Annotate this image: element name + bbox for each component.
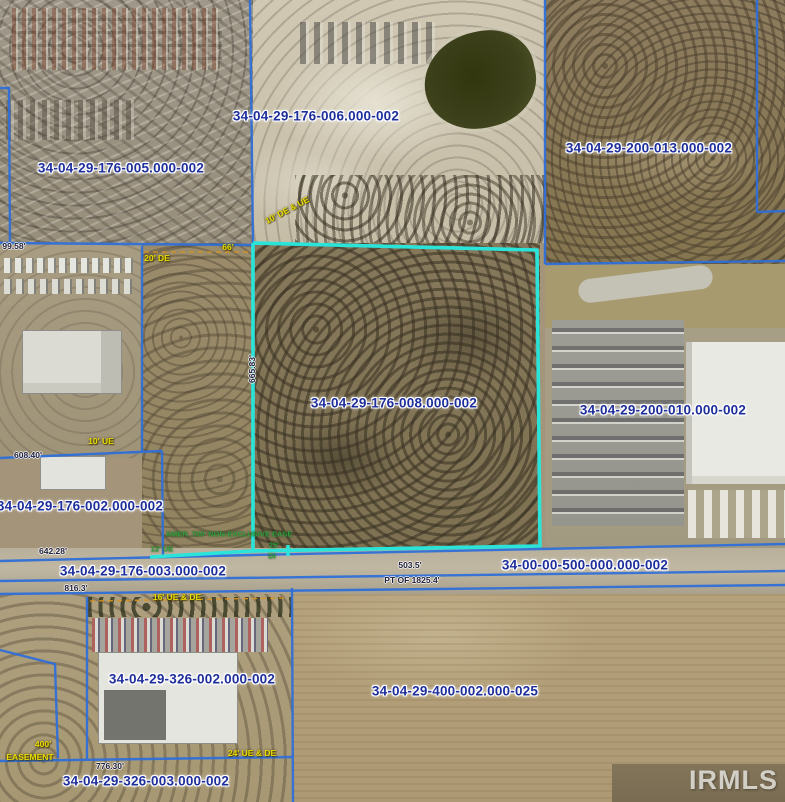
- parcel-id-label: 34-04-29-176-006.000-002: [233, 109, 399, 124]
- dimension-label: 665.83': [247, 355, 257, 383]
- easement-label: DI: [268, 552, 276, 561]
- dimension-label: 816.3': [64, 583, 87, 593]
- easement-label: AMER. 700' NON-EXCLUSIVE EASE: [166, 530, 293, 539]
- dimension-label: 776.30': [96, 761, 124, 771]
- parcel-id-label: 34-04-29-400-002.000-025: [372, 684, 538, 699]
- parcel-id-label: 34-00-00-500-000.000-002: [502, 558, 668, 573]
- labels-layer: 34-04-29-176-006.000-00234-04-29-200-013…: [0, 0, 785, 802]
- dimension-label: PT OF 1825.4': [384, 575, 439, 585]
- dimension-label: 608.40': [14, 450, 42, 460]
- parcel-id-label: 34-04-29-176-005.000-002: [38, 161, 204, 176]
- parcel-id-label: 34-04-29-326-002.000-002: [109, 672, 275, 687]
- easement-label: EASEMENT: [6, 752, 53, 762]
- easement-label: 24' UE & DE: [228, 748, 276, 758]
- easement-label: 10' UE: [88, 436, 114, 446]
- parcel-id-label: 34-04-29-326-003.000-002: [63, 774, 229, 789]
- parcel-id-label: 34-04-29-176-002.000-002: [0, 499, 163, 514]
- dimension-label: 503.5': [398, 560, 421, 570]
- easement-label: 16' UE & DE: [153, 592, 201, 602]
- easement-label: 400': [35, 739, 51, 749]
- parcel-id-label: 34-04-29-176-008.000-002: [311, 396, 477, 411]
- easement-label: 20' DE: [144, 253, 170, 263]
- easement-label: 25': [269, 541, 279, 550]
- parcel-id-label: 34-04-29-176-003.000-002: [60, 564, 226, 579]
- easement-label: 66': [222, 242, 233, 252]
- easement-label: 10' DE & UE: [263, 194, 310, 226]
- dimension-label: 642.28': [39, 546, 67, 556]
- parcel-id-label: 34-04-29-200-010.000-002: [580, 403, 746, 418]
- irmls-watermark: IRMLS: [689, 765, 778, 796]
- aerial-parcel-map: 34-04-29-176-006.000-00234-04-29-200-013…: [0, 0, 785, 802]
- easement-label: 12' UE: [151, 545, 174, 554]
- parcel-id-label: 34-04-29-200-013.000-002: [566, 141, 732, 156]
- dimension-label: 99.58': [2, 241, 25, 251]
